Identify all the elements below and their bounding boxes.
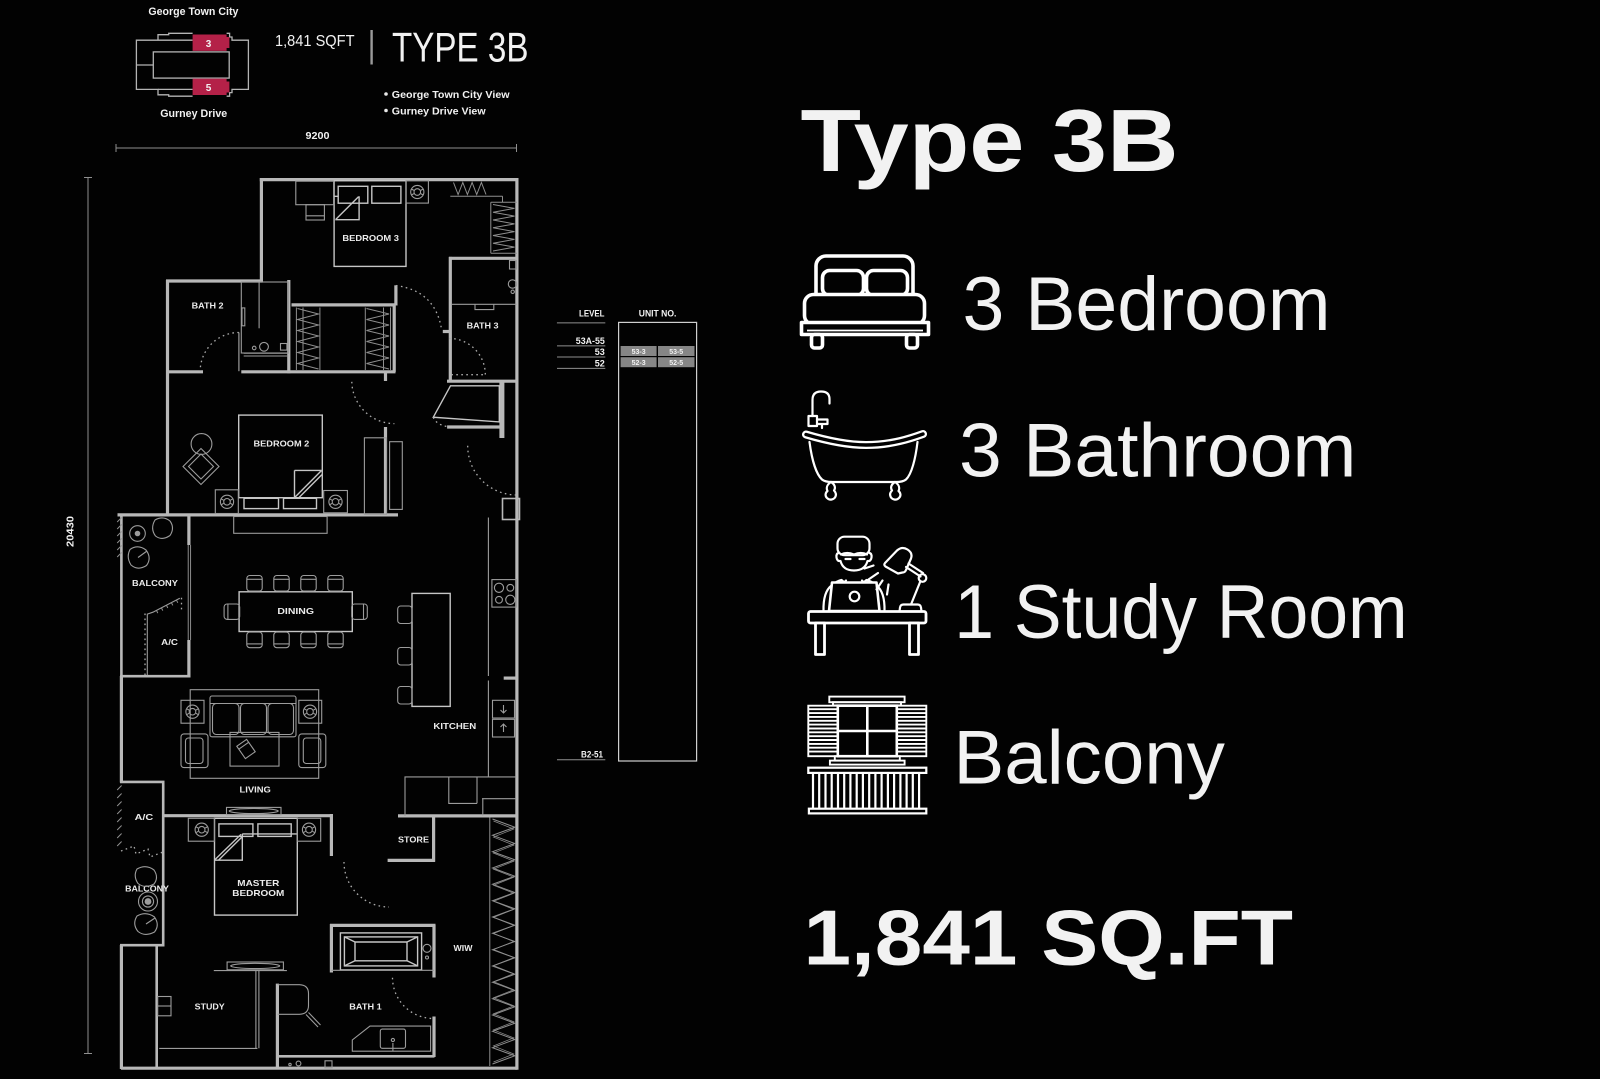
svg-text:TYPE 3B: TYPE 3B [392,24,529,71]
svg-text:53-3: 53-3 [632,349,646,356]
svg-text:BEDROOM 3: BEDROOM 3 [342,233,399,243]
svg-text:53A-55: 53A-55 [576,336,605,346]
svg-text:A/C: A/C [135,812,154,822]
svg-text:1,841 SQ.FT: 1,841 SQ.FT [804,893,1294,981]
svg-text:DINING: DINING [277,606,314,616]
svg-text:53-5: 53-5 [669,349,683,356]
svg-text:3: 3 [206,39,212,50]
svg-text:3 Bathroom: 3 Bathroom [959,408,1357,493]
svg-text:B2-51: B2-51 [581,749,603,759]
svg-text:3 Bedroom: 3 Bedroom [963,262,1331,347]
svg-text:BATH 1: BATH 1 [349,1001,382,1011]
svg-text:1,841 SQFT: 1,841 SQFT [275,33,355,50]
svg-text:BATH 2: BATH 2 [192,300,224,310]
svg-text:STORE: STORE [398,834,430,844]
svg-text:BEDROOM 2: BEDROOM 2 [254,438,310,448]
svg-text:Gurney Drive: Gurney Drive [160,108,227,120]
svg-text:20430: 20430 [66,516,77,547]
svg-text:UNIT NO.: UNIT NO. [639,309,677,319]
svg-text:52-3: 52-3 [632,360,646,367]
svg-text:Type 3B: Type 3B [801,91,1179,190]
svg-text:52: 52 [595,358,605,368]
svg-text:STUDY: STUDY [195,1001,226,1011]
svg-text:5: 5 [206,83,212,94]
svg-text:WIW: WIW [454,943,473,953]
svg-text:LIVING: LIVING [240,785,271,795]
svg-text:MASTER: MASTER [237,878,279,888]
svg-text:BALCONY: BALCONY [132,578,178,588]
svg-text:LEVEL: LEVEL [579,309,605,319]
svg-text:George Town City View: George Town City View [392,89,511,101]
svg-text:George Town City: George Town City [148,6,239,18]
svg-text:Gurney Drive View: Gurney Drive View [392,105,487,117]
svg-text:KITCHEN: KITCHEN [433,721,476,731]
svg-text:1 Study Room: 1 Study Room [954,570,1407,655]
svg-text:A/C: A/C [161,637,178,647]
svg-text:BEDROOM: BEDROOM [232,888,284,898]
svg-text:53: 53 [595,347,605,357]
svg-text:BATH 3: BATH 3 [467,320,499,330]
svg-text:52-5: 52-5 [669,360,683,367]
svg-text:Balcony: Balcony [953,716,1225,801]
svg-text:9200: 9200 [306,131,330,142]
